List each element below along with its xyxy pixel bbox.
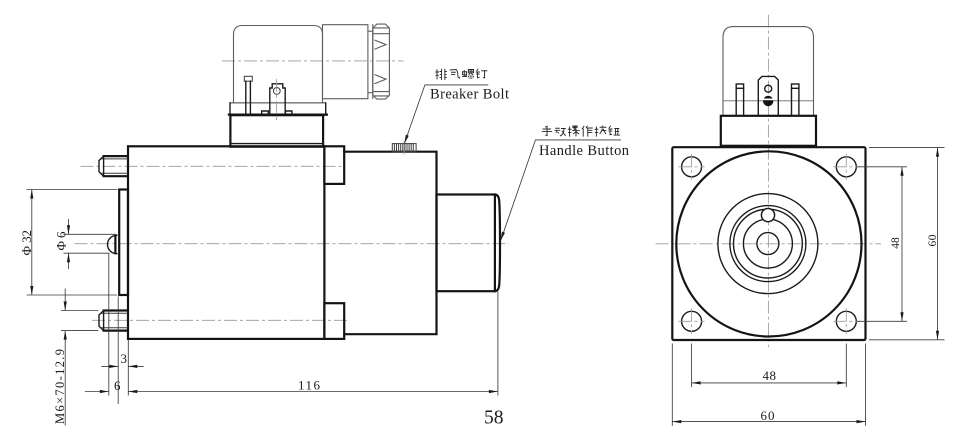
svg-text:48: 48 [763, 368, 777, 383]
svg-text:6: 6 [114, 378, 121, 393]
svg-text:48: 48 [890, 237, 902, 249]
svg-text:60: 60 [927, 234, 939, 246]
svg-text:60: 60 [761, 408, 775, 423]
svg-text:Φ 6: Φ 6 [54, 231, 69, 251]
svg-text:3: 3 [121, 351, 128, 366]
svg-text:116: 116 [298, 378, 321, 393]
svg-text:58: 58 [484, 408, 504, 429]
svg-text:Handle Button: Handle Button [539, 143, 630, 159]
svg-text:Φ 32: Φ 32 [19, 230, 34, 256]
svg-text:Breaker Bolt: Breaker Bolt [430, 86, 509, 102]
